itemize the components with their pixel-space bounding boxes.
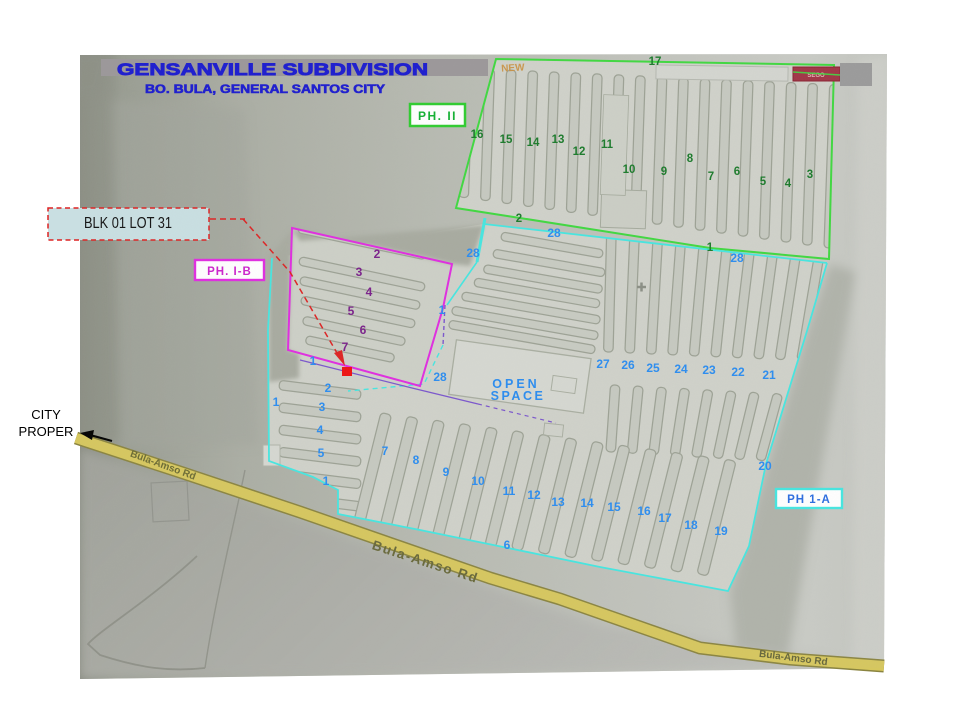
svg-text:PROPER: PROPER — [19, 424, 74, 439]
svg-text:CITY: CITY — [31, 407, 61, 422]
